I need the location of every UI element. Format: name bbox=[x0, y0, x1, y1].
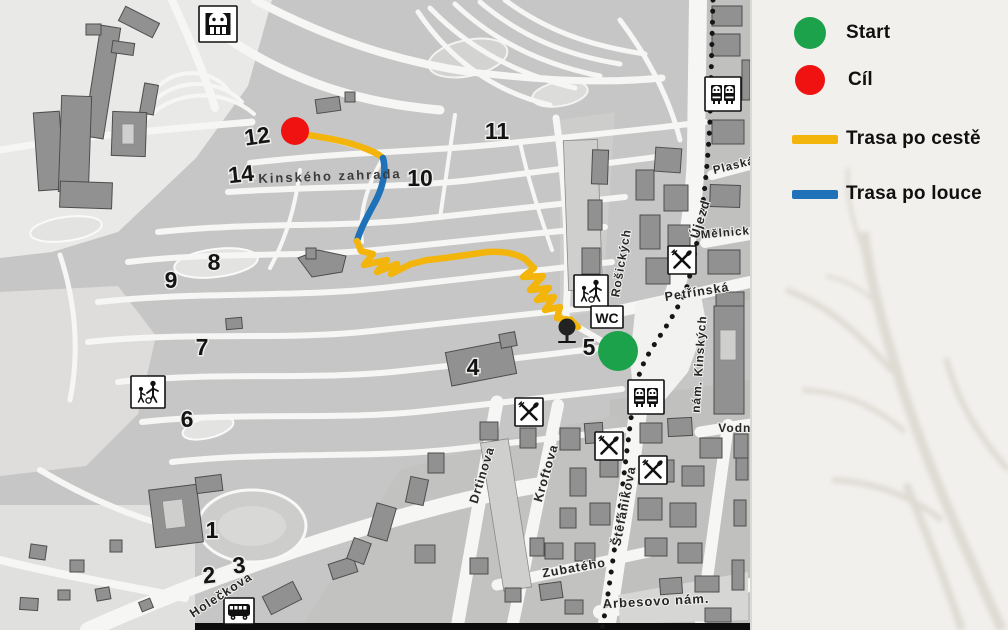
restaurant-icon bbox=[595, 432, 623, 460]
wc-icon: WC bbox=[591, 306, 623, 328]
map-number-9: 9 bbox=[165, 267, 178, 293]
trasa-po-ceste-swatch bbox=[792, 135, 838, 144]
restaurant-icon bbox=[639, 456, 667, 484]
svg-text:WC: WC bbox=[595, 310, 618, 326]
start-swatch bbox=[794, 17, 826, 49]
cil-marker bbox=[281, 117, 309, 145]
map-number-8: 8 bbox=[208, 249, 221, 275]
map-number-12: 12 bbox=[243, 121, 272, 150]
map-number-2: 2 bbox=[201, 561, 216, 588]
map-number-14: 14 bbox=[227, 160, 255, 189]
tram-icon bbox=[628, 380, 664, 414]
start-marker bbox=[598, 331, 638, 371]
trasa-po-louce-swatch bbox=[792, 190, 838, 199]
map-number-5: 5 bbox=[583, 334, 596, 360]
legend-label-trasa-po-louce: Trasa po louce bbox=[846, 183, 982, 205]
map-number-3: 3 bbox=[231, 551, 246, 578]
map-number-4: 4 bbox=[467, 354, 480, 380]
cil-swatch bbox=[795, 65, 825, 95]
funicular-icon bbox=[199, 6, 237, 42]
legend-label-start: Start bbox=[846, 22, 890, 44]
route-map-page: WC HolečkovaDrtinovaKroftovaŠtefánikovaZ… bbox=[0, 0, 1008, 630]
map-number-10: 10 bbox=[407, 165, 433, 191]
map-number-7: 7 bbox=[196, 334, 209, 360]
legend-item-cil: Cíl bbox=[795, 65, 873, 95]
restaurant-icon bbox=[515, 398, 543, 426]
map-artwork bbox=[0, 0, 750, 630]
legend: Start Cíl Trasa po cestě Trasa po louce bbox=[750, 0, 1008, 630]
map-number-6: 6 bbox=[181, 406, 194, 432]
legend-item-trasa-po-ceste: Trasa po cestě bbox=[792, 128, 981, 150]
tram-icon bbox=[705, 77, 741, 111]
legend-label-trasa-po-ceste: Trasa po cestě bbox=[846, 128, 981, 150]
map-number-11: 11 bbox=[485, 118, 510, 144]
playground-icon bbox=[131, 376, 165, 408]
legend-item-trasa-po-louce: Trasa po louce bbox=[792, 183, 982, 205]
legend-item-start: Start bbox=[794, 17, 890, 49]
legend-label-cil: Cíl bbox=[848, 69, 873, 91]
restaurant-icon bbox=[668, 246, 696, 274]
map-number-1: 1 bbox=[206, 517, 219, 543]
playground-icon bbox=[574, 275, 608, 307]
bus-icon bbox=[224, 598, 254, 624]
